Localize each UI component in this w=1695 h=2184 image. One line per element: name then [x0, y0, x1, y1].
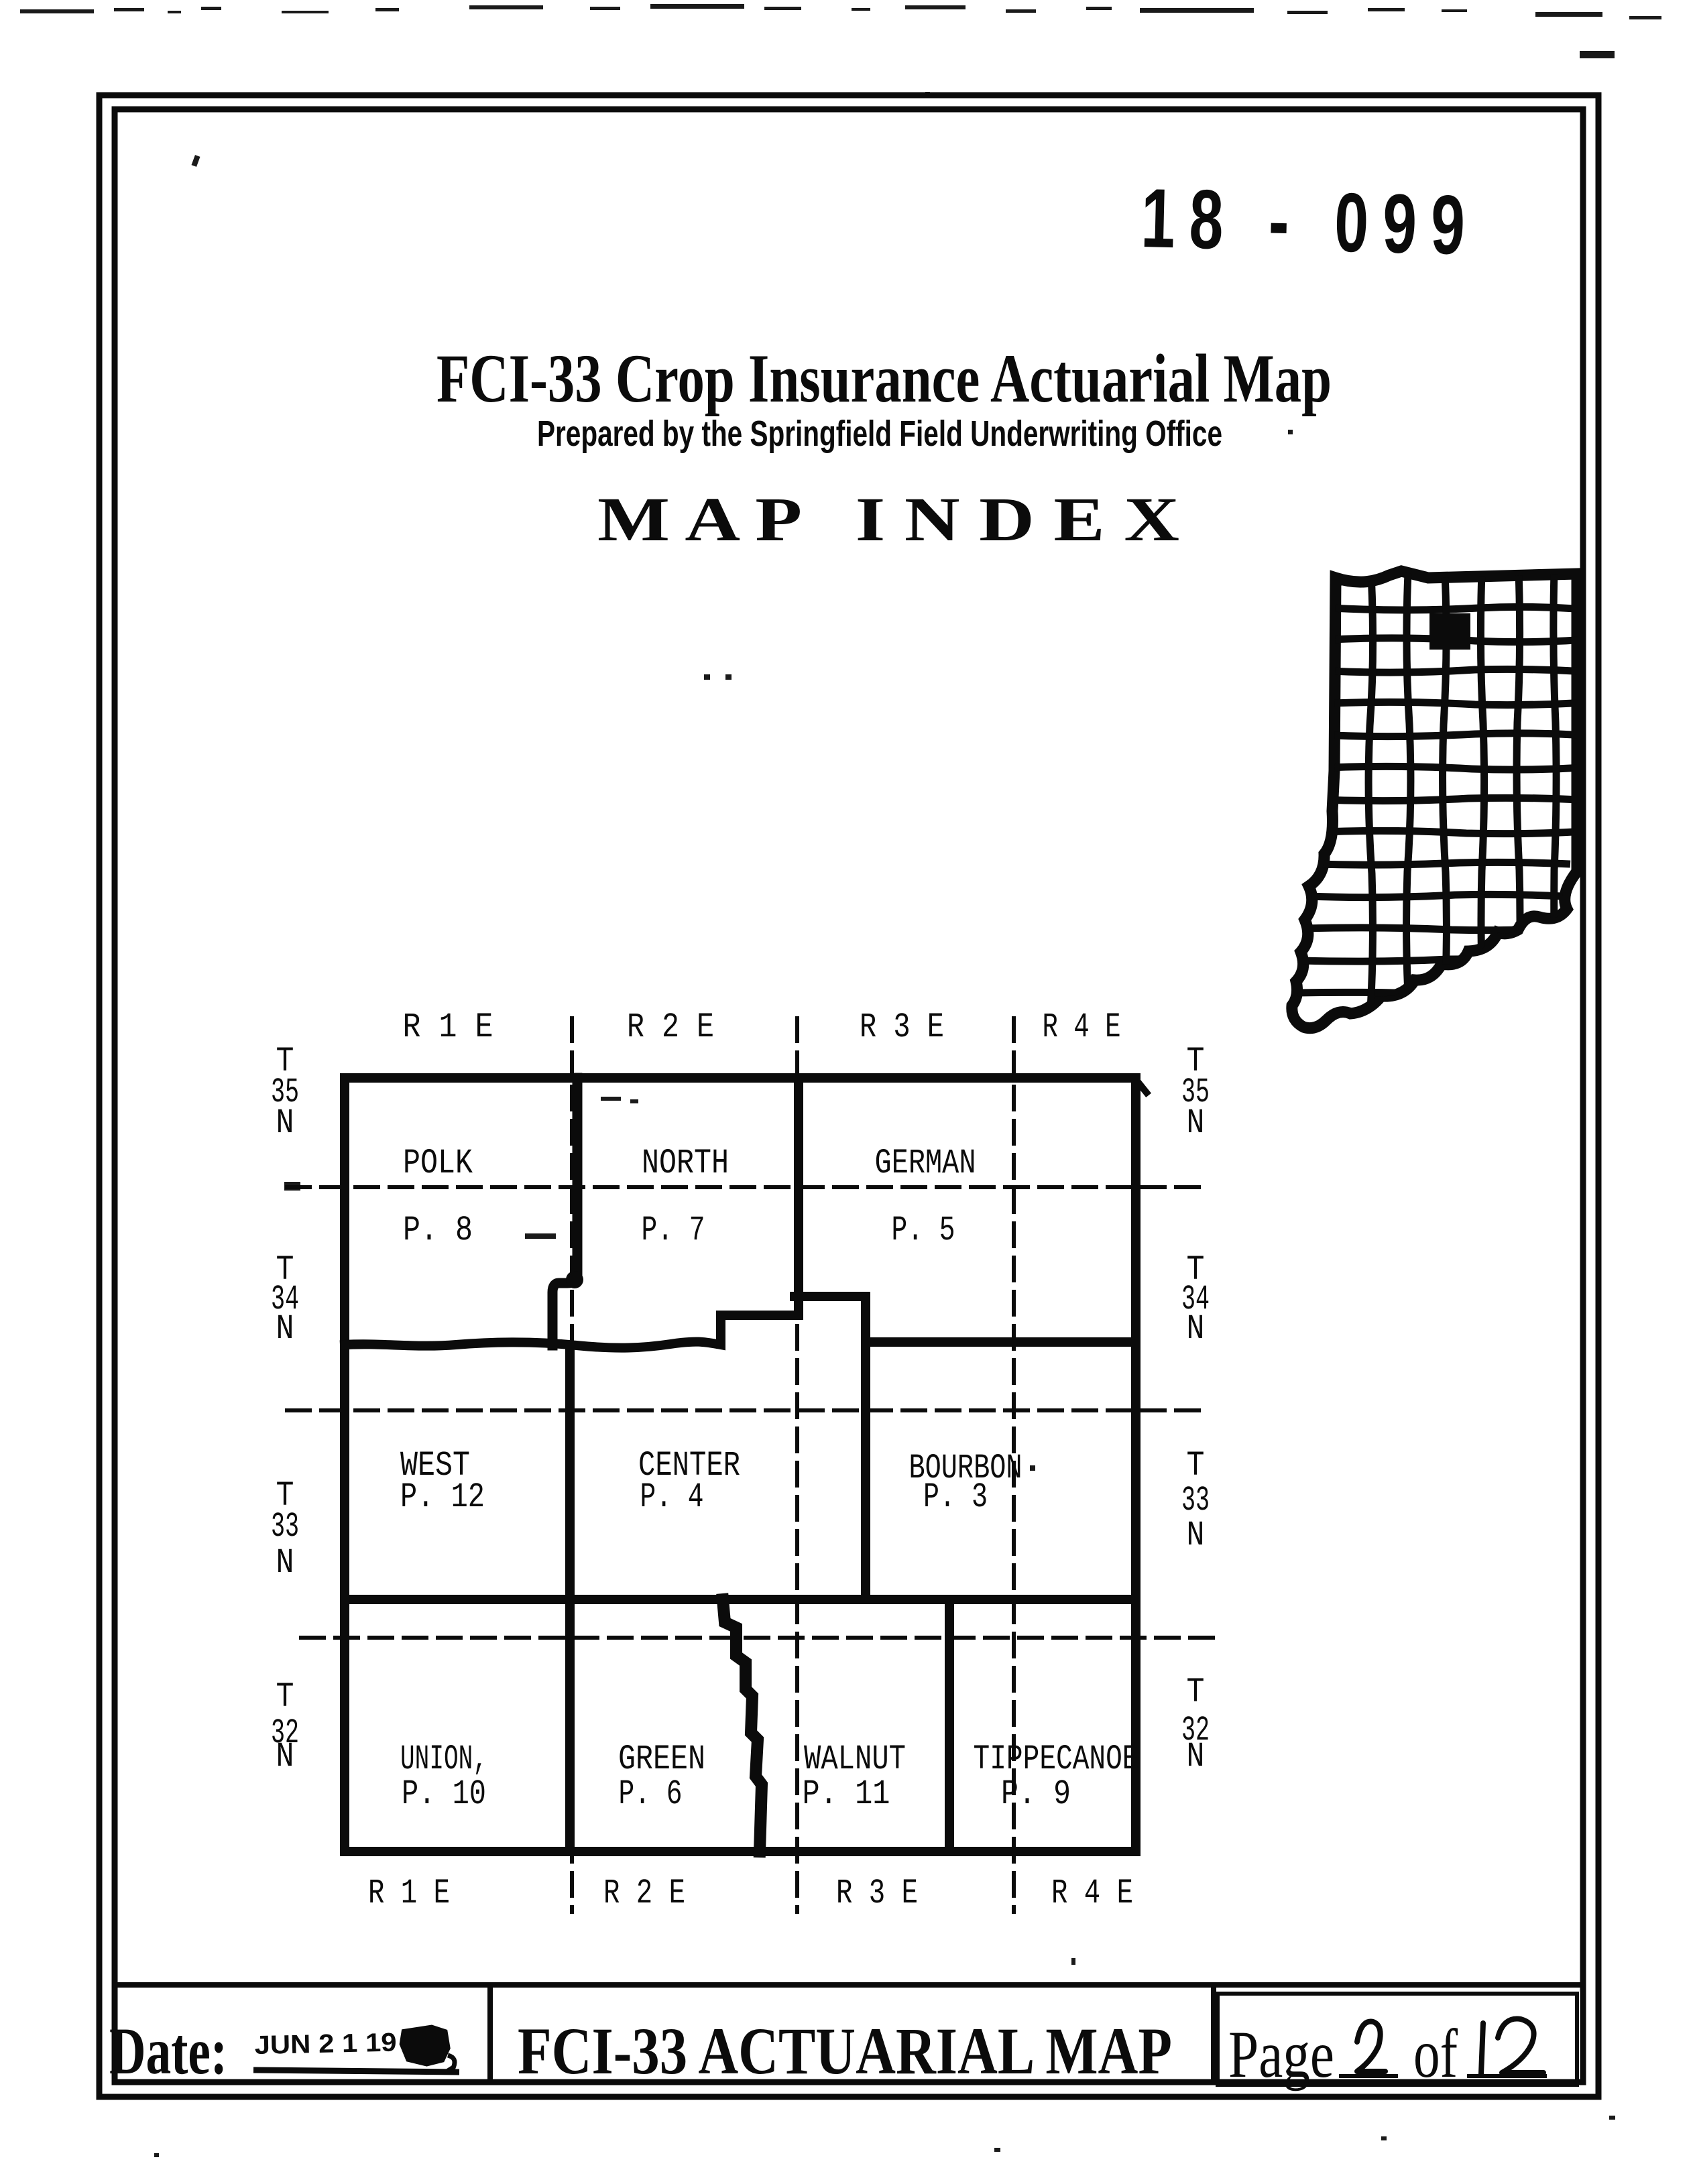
- svg-text:33: 33: [271, 1508, 299, 1547]
- svg-text:POLK: POLK: [403, 1144, 473, 1184]
- svg-text:P. 6: P. 6: [619, 1774, 683, 1814]
- svg-text:T: T: [1187, 1446, 1205, 1485]
- svg-text:Page: Page: [1228, 2017, 1334, 2091]
- svg-text:N: N: [276, 1103, 294, 1143]
- svg-text:GREEN: GREEN: [618, 1740, 705, 1780]
- svg-text:T: T: [276, 1677, 294, 1717]
- svg-text:N: N: [1187, 1103, 1205, 1143]
- svg-text:N: N: [1187, 1516, 1205, 1555]
- svg-text:P. 12: P. 12: [400, 1478, 485, 1517]
- svg-text:P. 10: P. 10: [402, 1775, 486, 1814]
- svg-text:Prepared by the Springfield Fi: Prepared by the Springfield Field Underw…: [537, 414, 1222, 454]
- svg-text:NORTH: NORTH: [642, 1144, 729, 1184]
- svg-text:UNION,: UNION,: [400, 1740, 487, 1779]
- svg-text:WALNUT: WALNUT: [804, 1740, 906, 1779]
- svg-text:P. 9: P. 9: [1001, 1775, 1071, 1815]
- svg-text:R 3 E: R 3 E: [836, 1874, 918, 1914]
- svg-text:of: of: [1413, 2015, 1458, 2092]
- svg-text:T: T: [1187, 1673, 1205, 1712]
- svg-text:18 - 099: 18 - 099: [1140, 172, 1480, 273]
- svg-text:R 2 E: R 2 E: [603, 1874, 685, 1914]
- svg-text:P. 5: P. 5: [892, 1211, 955, 1250]
- svg-text:R 1 E: R 1 E: [403, 1008, 493, 1047]
- svg-text:FCI-33 ACTUARIAL MAP: FCI-33 ACTUARIAL MAP: [518, 2014, 1172, 2088]
- svg-text:R 2 E: R 2 E: [627, 1008, 714, 1048]
- svg-text:R 1 E: R 1 E: [368, 1874, 450, 1914]
- svg-text:TIPPECANOE: TIPPECANOE: [974, 1740, 1139, 1780]
- svg-text:N: N: [276, 1309, 294, 1349]
- svg-text:N: N: [276, 1737, 294, 1776]
- svg-text:P. 3: P. 3: [923, 1477, 988, 1516]
- svg-text:33: 33: [1181, 1481, 1210, 1521]
- svg-text:P. 7: P. 7: [642, 1211, 705, 1250]
- svg-text:JUN 2 1 19: JUN 2 1 19: [254, 2028, 397, 2060]
- svg-text:R 4 E: R 4 E: [1042, 1008, 1120, 1047]
- svg-text:M A P I N D E X: M A P I N D E X: [597, 485, 1179, 554]
- svg-text:N: N: [1187, 1737, 1205, 1776]
- svg-text:FCI-33 Crop Insurance Actuaria: FCI-33 Crop Insurance Actuarial Map: [436, 341, 1332, 417]
- svg-text:P. 8: P. 8: [403, 1211, 473, 1251]
- svg-text:R 3 E: R 3 E: [860, 1008, 944, 1047]
- svg-text:N: N: [1187, 1309, 1205, 1349]
- svg-text:P. 4: P. 4: [640, 1477, 704, 1517]
- svg-text:GERMAN: GERMAN: [875, 1144, 976, 1183]
- svg-text:R 4 E: R 4 E: [1051, 1874, 1133, 1914]
- svg-text:P. 11: P. 11: [803, 1775, 890, 1814]
- svg-text:Date:: Date:: [109, 2014, 227, 2088]
- svg-text:N: N: [276, 1543, 294, 1583]
